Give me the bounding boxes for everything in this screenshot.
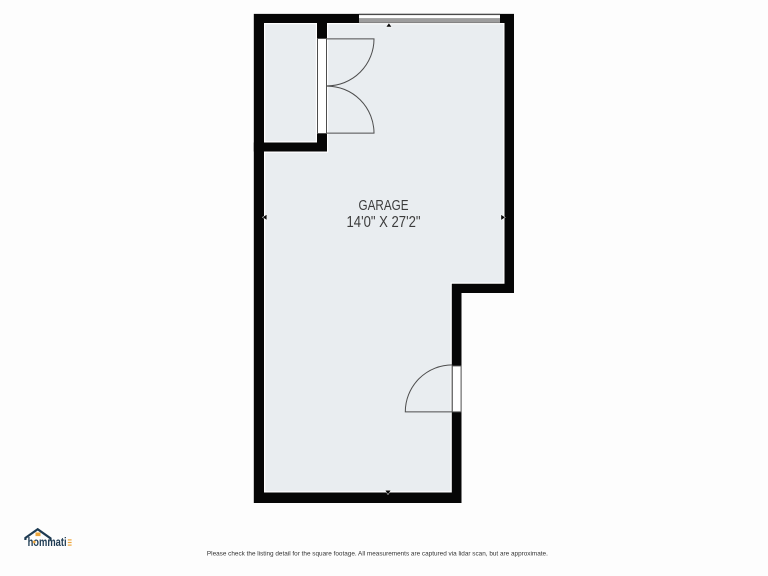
svg-text:hommati: hommati	[28, 537, 67, 549]
svg-text:GARAGE: GARAGE	[359, 198, 409, 214]
svg-text:Please check the listing detai: Please check the listing detail for the …	[207, 551, 548, 558]
svg-text:14'0" X 27'2": 14'0" X 27'2"	[347, 214, 421, 231]
